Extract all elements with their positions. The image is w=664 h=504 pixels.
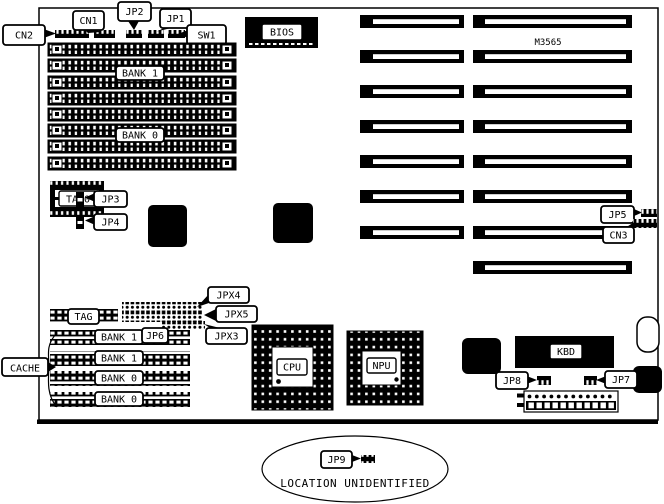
- svg-text:BANK 1: BANK 1: [101, 333, 137, 344]
- label-jpx5: JPX5: [204, 306, 257, 322]
- label-jpx4: JPX4: [197, 287, 249, 307]
- svg-text:CPU: CPU: [283, 363, 301, 374]
- label-jp1: JP1: [157, 9, 191, 32]
- svg-text:SW1: SW1: [197, 31, 215, 42]
- simm-socket: [48, 108, 236, 121]
- isa-slot-segment: [360, 50, 464, 63]
- square-chip-right: [462, 338, 501, 374]
- label-jpx3: JPX3: [204, 324, 247, 344]
- jpx4-header: [122, 302, 203, 312]
- cn3-connector: [633, 219, 657, 228]
- svg-text:JP3: JP3: [101, 195, 119, 206]
- label-bank0-simm: BANK 0: [116, 128, 164, 142]
- cpu-socket: CPU: [252, 325, 333, 410]
- npu-socket: NPU: [347, 331, 423, 405]
- motherboard-diagram: CN2 CN1 JP2 JP1 SW1 BIOS BANK 1 B: [0, 0, 664, 504]
- cpu-pin1-dot: [276, 379, 281, 384]
- jp2-jumper: [126, 30, 142, 38]
- kbd-chip: KBD: [515, 336, 614, 368]
- label-cn3: CN3: [603, 221, 636, 243]
- isa-slot-segment: [473, 190, 632, 203]
- svg-text:BIOS: BIOS: [270, 28, 294, 39]
- isa-slot-segment: [360, 120, 464, 133]
- isa-slot-segment: [360, 226, 464, 239]
- svg-text:CN2: CN2: [15, 31, 33, 42]
- jp5-jumper: [641, 209, 657, 217]
- label-jp2: JP2: [118, 2, 151, 30]
- square-chip-center: [273, 203, 313, 243]
- svg-text:JP5: JP5: [608, 210, 626, 221]
- jpx5-header: [122, 312, 203, 322]
- isa-slot-segment: [473, 120, 632, 133]
- svg-text:JP9: JP9: [327, 455, 345, 466]
- svg-text:TAG: TAG: [74, 312, 92, 323]
- label-cache-bank1a: BANK 1: [95, 330, 143, 344]
- svg-text:JP1: JP1: [166, 14, 184, 25]
- svg-text:CN1: CN1: [79, 16, 97, 27]
- label-cache-bank0a: BANK 0: [95, 371, 143, 385]
- isa-slot-segment: [360, 155, 464, 168]
- isa-slot-segment: [473, 85, 632, 98]
- svg-text:JPX5: JPX5: [224, 310, 248, 321]
- isa-slot-segment: [473, 15, 632, 28]
- simm-socket: [48, 92, 236, 105]
- label-bank1-simm: BANK 1: [116, 66, 164, 80]
- label-jp7: JP7: [596, 371, 637, 388]
- label-cn2: CN2: [3, 25, 56, 45]
- expansion-slots: [360, 15, 632, 274]
- square-chip-left: [148, 205, 187, 247]
- jp4-jumper: [76, 216, 84, 229]
- svg-text:JP4: JP4: [101, 218, 119, 229]
- svg-text:NPU: NPU: [372, 361, 390, 372]
- jp7-jumper: [584, 376, 597, 385]
- isa-slot-segment: [360, 15, 464, 28]
- isa-slot-segment: [360, 85, 464, 98]
- isa-slot-segment: [473, 155, 632, 168]
- svg-text:BANK 1: BANK 1: [101, 354, 137, 365]
- jp9-jumper: [361, 455, 375, 463]
- label-tag: TAG: [68, 309, 99, 324]
- svg-text:BANK 0: BANK 0: [101, 395, 137, 406]
- keyboard-port-outline: [637, 317, 659, 352]
- chipset-part-number: M3565: [534, 38, 561, 48]
- label-cache-bank0b: BANK 0: [95, 392, 143, 406]
- jp3-jumper: [76, 192, 84, 208]
- isa-slot-segment: [473, 50, 632, 63]
- svg-text:BANK 0: BANK 0: [122, 131, 158, 142]
- npu-pin1-dot: [394, 377, 398, 381]
- jp1-jumper: [148, 30, 164, 38]
- svg-text:CACHE: CACHE: [10, 364, 40, 375]
- svg-text:BANK 0: BANK 0: [101, 374, 137, 385]
- svg-text:JP7: JP7: [612, 375, 630, 386]
- power-connector: [517, 391, 618, 412]
- svg-text:BANK 1: BANK 1: [122, 69, 158, 80]
- label-cache: CACHE: [2, 333, 57, 407]
- svg-text:CN3: CN3: [609, 231, 627, 242]
- svg-text:KBD: KBD: [557, 347, 575, 358]
- label-cn1: CN1: [73, 11, 104, 33]
- simm-socket: [48, 157, 236, 170]
- label-jp8: JP8: [496, 372, 537, 389]
- label-jp6: JP6: [142, 328, 168, 343]
- bios-chip: BIOS: [245, 17, 318, 48]
- label-cache-bank1b: BANK 1: [95, 351, 143, 365]
- jp9-note-text: LOCATION UNIDENTIFIED: [280, 477, 430, 490]
- isa-slot-segment: [360, 190, 464, 203]
- jpx3-header: [162, 321, 205, 330]
- simm-socket: [48, 43, 236, 56]
- isa-slot-segment: [473, 261, 632, 274]
- svg-text:JPX3: JPX3: [214, 332, 238, 343]
- svg-text:JP6: JP6: [146, 331, 164, 342]
- jp8-jumper: [537, 376, 551, 385]
- svg-text:JPX4: JPX4: [216, 291, 240, 302]
- cn2-connector: [55, 30, 89, 38]
- svg-text:JP2: JP2: [125, 7, 143, 18]
- svg-text:JP8: JP8: [503, 376, 521, 387]
- jp9-note: JP9 LOCATION UNIDENTIFIED: [262, 436, 448, 502]
